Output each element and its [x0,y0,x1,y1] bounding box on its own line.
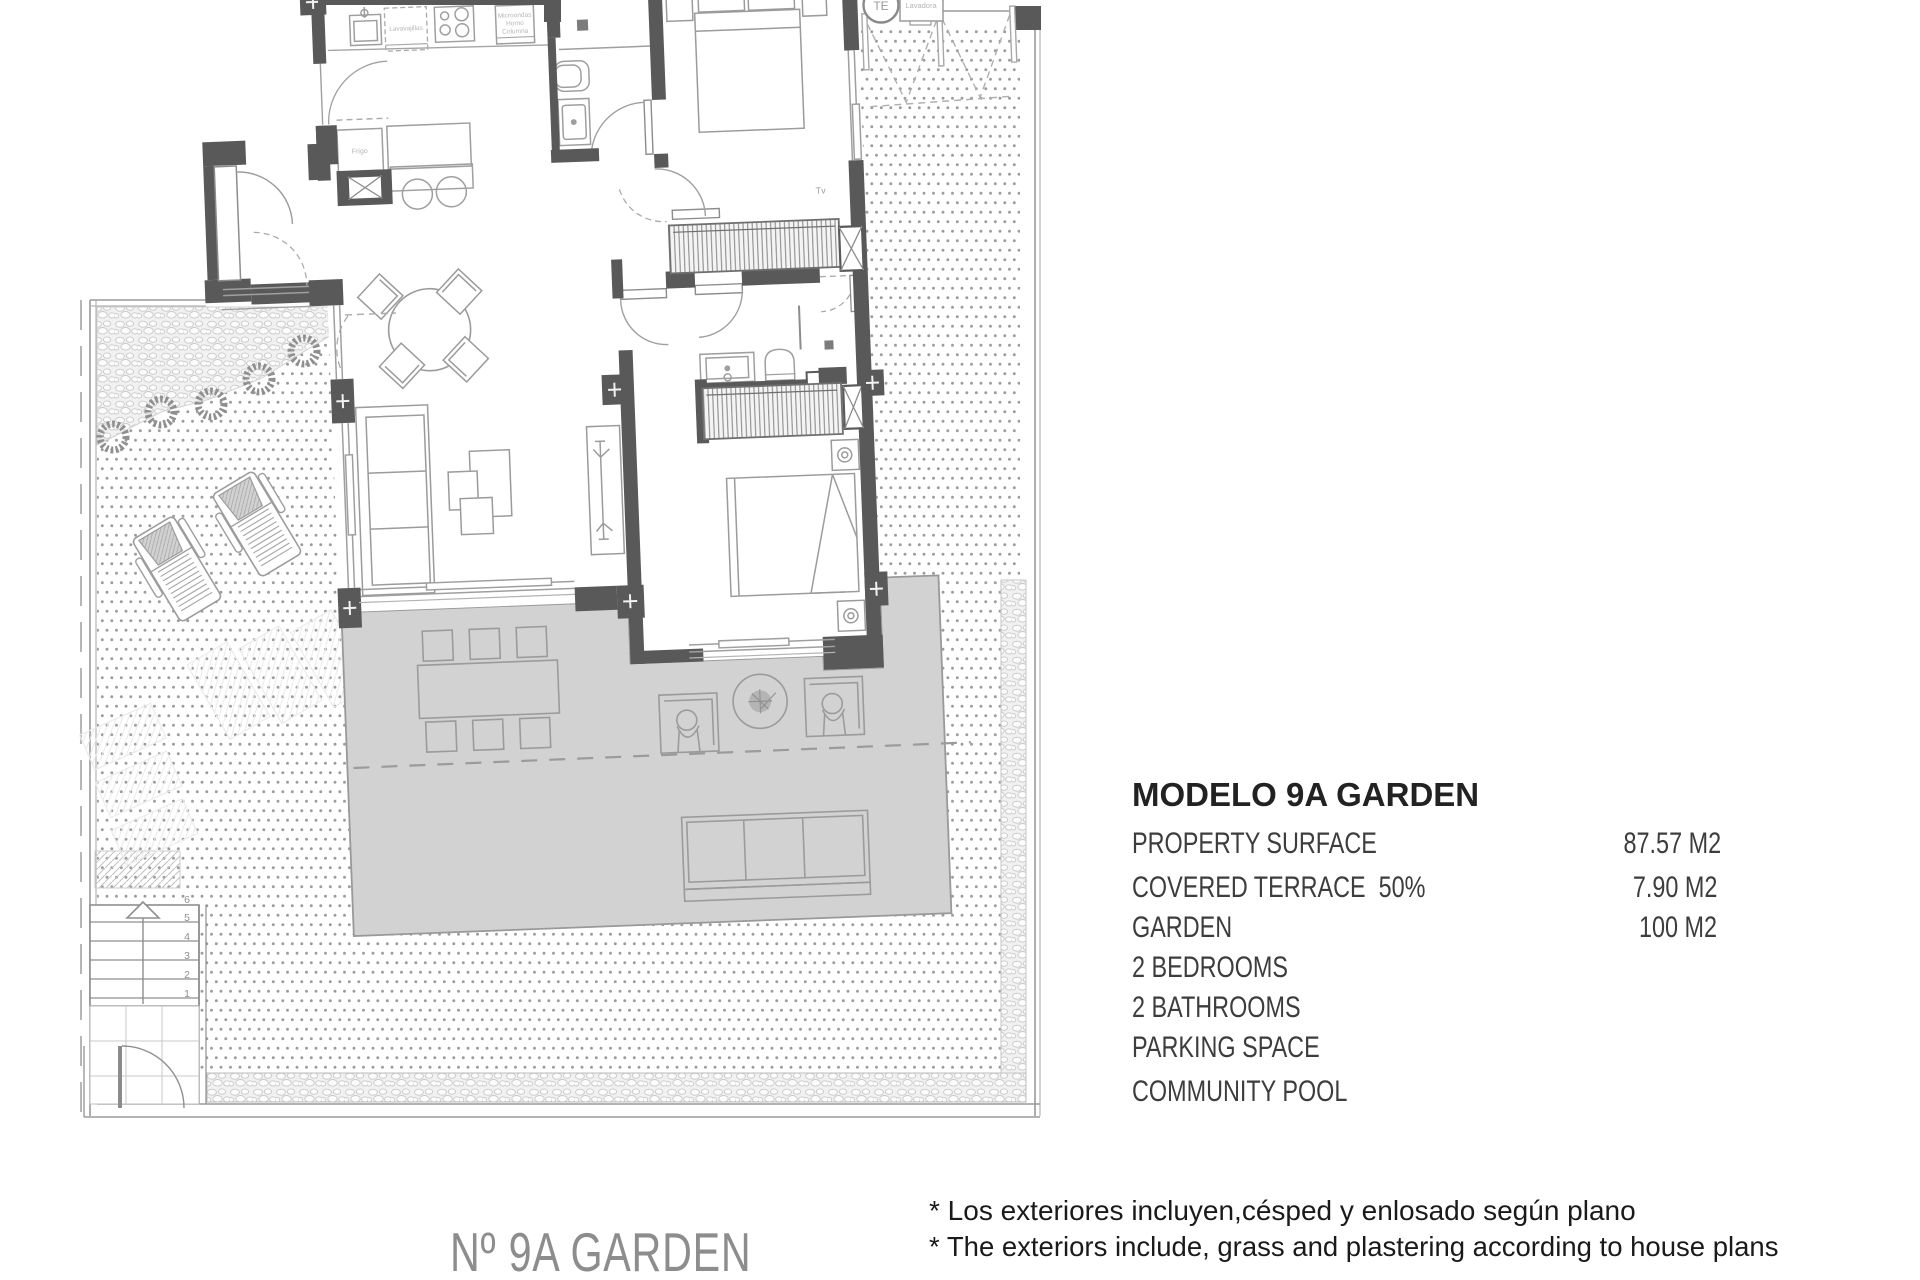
svg-text:3: 3 [184,950,190,962]
svg-text:Columna: Columna [502,28,529,36]
svg-text:Lavavajillas: Lavavajillas [389,25,424,33]
svg-text:5: 5 [184,912,190,924]
svg-text:Horno: Horno [506,20,524,28]
svg-text:1: 1 [184,988,190,1000]
svg-text:4: 4 [184,931,190,943]
svg-text:Frigo: Frigo [352,148,368,156]
svg-text:2: 2 [184,969,190,981]
svg-text:TE: TE [873,0,888,13]
svg-text:Microondas: Microondas [498,12,533,20]
svg-text:Tv: Tv [815,185,826,195]
svg-text:Lavadora: Lavadora [905,1,937,10]
svg-text:6: 6 [184,894,190,906]
